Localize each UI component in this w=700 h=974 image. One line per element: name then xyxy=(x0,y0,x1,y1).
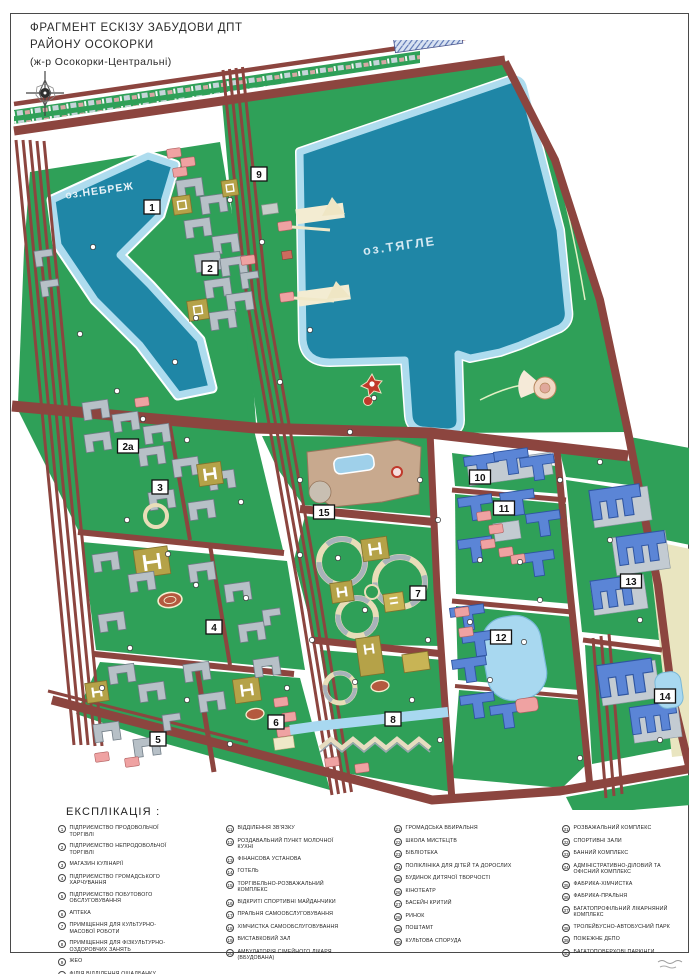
legend-item-number: 6 xyxy=(58,910,66,918)
legend-item: 6АПТЕКА xyxy=(58,910,226,918)
legend-item: 13ФІНАНСОВА УСТАНОВА xyxy=(226,856,394,864)
legend-item-label: ФІНАНСОВА УСТАНОВА xyxy=(238,856,302,863)
legend-item-number: 4 xyxy=(58,874,66,882)
legend-item: 20АМБУЛАТОРІЯ СІМЕЙНОГО ЛІКАРЯ (ВБУДОВАН… xyxy=(226,949,394,963)
district-marker-label: 7 xyxy=(415,589,421,600)
compass-rose-icon xyxy=(24,70,66,118)
district-marker-5: 5 xyxy=(150,732,166,746)
legend-item-number: 3 xyxy=(58,861,66,869)
district-marker-13: 13 xyxy=(621,574,642,588)
district-marker-label: 14 xyxy=(659,692,671,703)
district-marker-label: 1 xyxy=(149,203,155,214)
legend-item-label: СПОРТИВНІ ЗАЛИ xyxy=(574,838,622,845)
district-marker-8: 8 xyxy=(385,712,401,726)
legend-item-label: ГОТЕЛЬ xyxy=(238,868,259,875)
legend-item: 16ВІДКРИТІ СПОРТИВНІ МАЙДАНЧИКИ xyxy=(226,899,394,907)
legend-item-number: 17 xyxy=(226,911,234,919)
district-marker-14: 14 xyxy=(655,689,676,703)
legend-item-number: 36 xyxy=(562,893,570,901)
legend-item-number: 18 xyxy=(226,924,234,932)
legend-item-number: 37 xyxy=(562,906,570,914)
legend-item-label: ФАБРИКА-ПРАЛЬНЯ xyxy=(574,893,628,900)
legend-item-label: КУЛЬТОВА СПОРУДА xyxy=(406,938,462,945)
legend-item-number: 39 xyxy=(562,936,570,944)
district-marker-label: 2 xyxy=(207,264,213,275)
title-line-1: ФРАГМЕНТ ЕСКІЗУ ЗАБУДОВИ ДПТ xyxy=(30,20,243,37)
legend-item-label: РОЗДАВАЛЬНИЙ ПУНКТ МОЛОЧНОЇ КУХНІ xyxy=(238,838,348,852)
legend-item: 17ПРАЛЬНЯ САМООБСЛУГОВУВАННЯ xyxy=(226,911,394,919)
legend-item-number: 40 xyxy=(562,949,570,957)
legend-item-label: БАСЕЙН КРИТИЙ xyxy=(406,900,452,907)
legend-item-label: ПІДПРИЄМСТВО НЕПРОДОВОЛЬЧОЇ ТОРГІВЛІ xyxy=(70,843,180,857)
legend-item-label: ШКОЛА МИСТЕЦТВ xyxy=(406,838,458,845)
legend-item-label: КІНОТЕАТР xyxy=(406,888,436,895)
district-marker-label: 10 xyxy=(474,473,486,484)
legend-item: 7ПРИМІЩЕННЯ ДЛЯ КУЛЬТУРНО-МАСОВОЇ РОБОТИ xyxy=(58,922,226,936)
reserve-hatch-strips xyxy=(393,40,550,53)
legend-item-number: 38 xyxy=(562,924,570,932)
legend-column-4: 31РОЗВАЖАЛЬНИЙ КОМПЛЕКС32СПОРТИВНІ ЗАЛИ3… xyxy=(562,825,674,974)
legend-item-label: ЖЕО xyxy=(70,958,83,965)
legend-item-number: 30 xyxy=(394,938,402,946)
legend-item-label: ПОЛІКЛІНІКА ДЛЯ ДІТЕЙ ТА ДОРОСЛИХ xyxy=(406,863,512,870)
legend-item: 26КІНОТЕАТР xyxy=(394,888,562,896)
legend-item-number: 21 xyxy=(394,825,402,833)
legend-item: 24ПОЛІКЛІНІКА ДЛЯ ДІТЕЙ ТА ДОРОСЛИХ xyxy=(394,863,562,871)
legend-item-label: БАГАТОПРОФІЛЬНИЙ ЛІКАРНЯНИЙ КОМПЛЕКС xyxy=(574,906,675,920)
district-marker-label: 9 xyxy=(256,170,262,181)
legend-item: 11ВІДДІЛЕННЯ ЗВ'ЯЗКУ xyxy=(226,825,394,833)
legend-item: 29ПОШТАМТ xyxy=(394,925,562,933)
legend-column-1: 1ПІДПРИЄМСТВО ПРОДОВОЛЬЧОЇ ТОРГІВЛІ2ПІДП… xyxy=(58,825,226,974)
district-marker-label: 15 xyxy=(318,508,330,519)
legend-item-number: 32 xyxy=(562,838,570,846)
legend-item-label: ПРИМІЩЕННЯ ДЛЯ КУЛЬТУРНО-МАСОВОЇ РОБОТИ xyxy=(70,922,180,936)
district-marker-label: 12 xyxy=(495,633,507,644)
legend-item: 14ГОТЕЛЬ xyxy=(226,868,394,876)
legend-item: 39ПОЖЕЖНЕ ДЕПО xyxy=(562,936,674,944)
district-marker-1: 1 xyxy=(144,200,160,214)
legend-item: 21ГРОМАДСЬКА ВБИРАЛЬНЯ xyxy=(394,825,562,833)
corner-stamp xyxy=(656,958,686,970)
legend-item-number: 29 xyxy=(394,925,402,933)
legend-item-number: 25 xyxy=(394,875,402,883)
legend-item-number: 15 xyxy=(226,881,234,889)
legend-item-label: ПРИМІЩЕННЯ ДЛЯ ФІЗКУЛЬТУРНО-ОЗДОРОВЧИХ З… xyxy=(70,940,180,954)
district-marker-2а: 2а xyxy=(118,439,139,453)
district-marker-6: 6 xyxy=(268,715,284,729)
district-marker-11: 11 xyxy=(494,501,515,515)
legend-item: 36ФАБРИКА-ПРАЛЬНЯ xyxy=(562,893,674,901)
legend-item-number: 28 xyxy=(394,913,402,921)
legend-item-label: АПТЕКА xyxy=(70,910,91,917)
legend-item: 27БАСЕЙН КРИТИЙ xyxy=(394,900,562,908)
legend-item-number: 24 xyxy=(394,863,402,871)
district-marker-label: 3 xyxy=(157,483,163,494)
legend-item-number: 16 xyxy=(226,899,234,907)
legend-item-label: ВИСТАВКОВИЙ ЗАЛ xyxy=(238,936,291,943)
plan-sheet: ФРАГМЕНТ ЕСКІЗУ ЗАБУДОВИ ДПТ РАЙОНУ ОСОК… xyxy=(0,0,700,974)
district-marker-label: 6 xyxy=(273,718,279,729)
district-marker-9: 9 xyxy=(251,167,267,181)
legend-item: 33БАННИЙ КОМПЛЕКС xyxy=(562,850,674,858)
legend-heading: ЕКСПЛІКАЦІЯ : xyxy=(66,806,674,818)
legend-item-label: ТРОЛЕЙБУСНО-АВТОБУСНИЙ ПАРК xyxy=(574,924,671,931)
map-canvas: оз.НЕБРЕЖ оз.ТЯГЛЕ 122а34567891011121314… xyxy=(11,40,689,810)
legend-item-label: ПІДПРИЄМСТВО ПРОДОВОЛЬЧОЇ ТОРГІВЛІ xyxy=(70,825,180,839)
legend-item-label: ПРАЛЬНЯ САМООБСЛУГОВУВАННЯ xyxy=(238,911,334,918)
legend-item-label: БІБЛІОТЕКА xyxy=(406,850,438,857)
legend-item: 37БАГАТОПРОФІЛЬНИЙ ЛІКАРНЯНИЙ КОМПЛЕКС xyxy=(562,906,674,920)
legend-column-3: 21ГРОМАДСЬКА ВБИРАЛЬНЯ22ШКОЛА МИСТЕЦТВ23… xyxy=(394,825,562,974)
district-marker-label: 13 xyxy=(625,577,637,588)
legend-item-label: ВІДДІЛЕННЯ ЗВ'ЯЗКУ xyxy=(238,825,295,832)
legend-item: 18ХІМЧИСТКА САМООБСЛУГОВУВАННЯ xyxy=(226,924,394,932)
legend-item-label: БАННИЙ КОМПЛЕКС xyxy=(574,850,629,857)
legend-item-label: РОЗВАЖАЛЬНИЙ КОМПЛЕКС xyxy=(574,825,652,832)
legend-item: 28РИНОК xyxy=(394,913,562,921)
legend-item-label: РИНОК xyxy=(406,913,425,920)
legend-item: 34АДМІНІСТРАТИВНО-ДІЛОВИЙ ТА ОФІСНИЙ КОМ… xyxy=(562,863,674,877)
legend-item: 9ЖЕО xyxy=(58,958,226,966)
legend-item-number: 11 xyxy=(226,825,234,833)
legend: ЕКСПЛІКАЦІЯ : 1ПІДПРИЄМСТВО ПРОДОВОЛЬЧОЇ… xyxy=(58,806,674,974)
legend-item-label: ПОЖЕЖНЕ ДЕПО xyxy=(574,936,620,943)
title-block: ФРАГМЕНТ ЕСКІЗУ ЗАБУДОВИ ДПТ РАЙОНУ ОСОК… xyxy=(30,20,243,70)
district-marker-label: 2а xyxy=(122,442,134,453)
legend-item-number: 5 xyxy=(58,892,66,900)
legend-item-number: 12 xyxy=(226,838,234,846)
legend-item-label: БАГАТОПОВЕРХОВІ ПАРКІНГИ xyxy=(574,949,655,956)
legend-item: 12РОЗДАВАЛЬНИЙ ПУНКТ МОЛОЧНОЇ КУХНІ xyxy=(226,838,394,852)
legend-item-number: 22 xyxy=(394,838,402,846)
district-marker-label: 4 xyxy=(211,623,217,634)
legend-item: 15ТОРГІВЕЛЬНО-РОЗВАЖАЛЬНИЙ КОМПЛЕКС xyxy=(226,881,394,895)
legend-item-number: 1 xyxy=(58,825,66,833)
legend-item-label: ФІЛІЯ ВІДДІЛЕННЯ ОЩАДБАНКУ xyxy=(70,971,156,974)
legend-item: 31РОЗВАЖАЛЬНИЙ КОМПЛЕКС xyxy=(562,825,674,833)
legend-item: 22ШКОЛА МИСТЕЦТВ xyxy=(394,838,562,846)
legend-item: 25БУДИНОК ДИТЯЧОЇ ТВОРЧОСТІ xyxy=(394,875,562,883)
legend-item: 1ПІДПРИЄМСТВО ПРОДОВОЛЬЧОЇ ТОРГІВЛІ xyxy=(58,825,226,839)
legend-item-label: ХІМЧИСТКА САМООБСЛУГОВУВАННЯ xyxy=(238,924,339,931)
legend-item: 23БІБЛІОТЕКА xyxy=(394,850,562,858)
legend-item-label: МАГАЗИН КУЛІНАРІЇ xyxy=(70,861,124,868)
legend-item-number: 8 xyxy=(58,940,66,948)
legend-item-label: ПОШТАМТ xyxy=(406,925,434,932)
legend-item-number: 7 xyxy=(58,922,66,930)
legend-item-label: ПІДПРИЄМСТВО ГРОМАДСЬКОГО ХАРЧУВАННЯ xyxy=(70,874,180,888)
legend-item: 30КУЛЬТОВА СПОРУДА xyxy=(394,938,562,946)
legend-item-label: ФАБРИКА-ХІМЧИСТКА xyxy=(574,881,633,888)
legend-item-label: БУДИНОК ДИТЯЧОЇ ТВОРЧОСТІ xyxy=(406,875,491,882)
legend-item-number: 33 xyxy=(562,850,570,858)
legend-item-number: 26 xyxy=(394,888,402,896)
legend-item: 5ПІДПРИЄМСТВО ПОБУТОВОГО ОБСЛУГОВУВАННЯ xyxy=(58,892,226,906)
legend-item-number: 35 xyxy=(562,881,570,889)
legend-item-number: 14 xyxy=(226,868,234,876)
legend-item-label: ВІДКРИТІ СПОРТИВНІ МАЙДАНЧИКИ xyxy=(238,899,336,906)
legend-item-number: 23 xyxy=(394,850,402,858)
legend-item-number: 31 xyxy=(562,825,570,833)
legend-item-label: ПІДПРИЄМСТВО ПОБУТОВОГО ОБСЛУГОВУВАННЯ xyxy=(70,892,180,906)
legend-item-number: 9 xyxy=(58,958,66,966)
site-plan-map: оз.НЕБРЕЖ оз.ТЯГЛЕ 122а34567891011121314… xyxy=(11,40,689,810)
legend-item: 38ТРОЛЕЙБУСНО-АВТОБУСНИЙ ПАРК xyxy=(562,924,674,932)
district-marker-2: 2 xyxy=(202,261,218,275)
legend-item: 35ФАБРИКА-ХІМЧИСТКА xyxy=(562,881,674,889)
district-marker-4: 4 xyxy=(206,620,222,634)
title-line-3: (ж-р Осокорки-Центральні) xyxy=(30,55,243,71)
legend-column-2: 11ВІДДІЛЕННЯ ЗВ'ЯЗКУ12РОЗДАВАЛЬНИЙ ПУНКТ… xyxy=(226,825,394,974)
legend-item: 8ПРИМІЩЕННЯ ДЛЯ ФІЗКУЛЬТУРНО-ОЗДОРОВЧИХ … xyxy=(58,940,226,954)
district-marker-12: 12 xyxy=(491,630,512,644)
district-marker-label: 5 xyxy=(155,735,161,746)
legend-columns: 1ПІДПРИЄМСТВО ПРОДОВОЛЬЧОЇ ТОРГІВЛІ2ПІДП… xyxy=(58,825,674,974)
district-marker-3: 3 xyxy=(152,480,168,494)
legend-item: 3МАГАЗИН КУЛІНАРІЇ xyxy=(58,861,226,869)
legend-item-number: 13 xyxy=(226,856,234,864)
legend-item-label: ТОРГІВЕЛЬНО-РОЗВАЖАЛЬНИЙ КОМПЛЕКС xyxy=(238,881,348,895)
legend-item-label: ГРОМАДСЬКА ВБИРАЛЬНЯ xyxy=(406,825,478,832)
legend-item-label: АДМІНІСТРАТИВНО-ДІЛОВИЙ ТА ОФІСНИЙ КОМПЛ… xyxy=(574,863,675,877)
legend-item: 4ПІДПРИЄМСТВО ГРОМАДСЬКОГО ХАРЧУВАННЯ xyxy=(58,874,226,888)
district-marker-10: 10 xyxy=(470,470,491,484)
legend-item-number: 2 xyxy=(58,843,66,851)
legend-item-number: 19 xyxy=(226,936,234,944)
legend-item: 40БАГАТОПОВЕРХОВІ ПАРКІНГИ xyxy=(562,949,674,957)
legend-item: 32СПОРТИВНІ ЗАЛИ xyxy=(562,838,674,846)
legend-item: 19ВИСТАВКОВИЙ ЗАЛ xyxy=(226,936,394,944)
district-marker-15: 15 xyxy=(314,505,335,519)
legend-item-label: АМБУЛАТОРІЯ СІМЕЙНОГО ЛІКАРЯ (ВБУДОВАНА) xyxy=(238,949,348,963)
legend-item-number: 10 xyxy=(58,971,66,974)
legend-item-number: 20 xyxy=(226,949,234,957)
legend-item-number: 27 xyxy=(394,900,402,908)
district-marker-7: 7 xyxy=(410,586,426,600)
legend-item-number: 34 xyxy=(562,863,570,871)
legend-item: 10ФІЛІЯ ВІДДІЛЕННЯ ОЩАДБАНКУ xyxy=(58,971,226,974)
district-marker-label: 11 xyxy=(499,504,510,515)
title-line-2: РАЙОНУ ОСОКОРКИ xyxy=(30,37,243,54)
district-marker-label: 8 xyxy=(390,715,396,726)
legend-item: 2ПІДПРИЄМСТВО НЕПРОДОВОЛЬЧОЇ ТОРГІВЛІ xyxy=(58,843,226,857)
